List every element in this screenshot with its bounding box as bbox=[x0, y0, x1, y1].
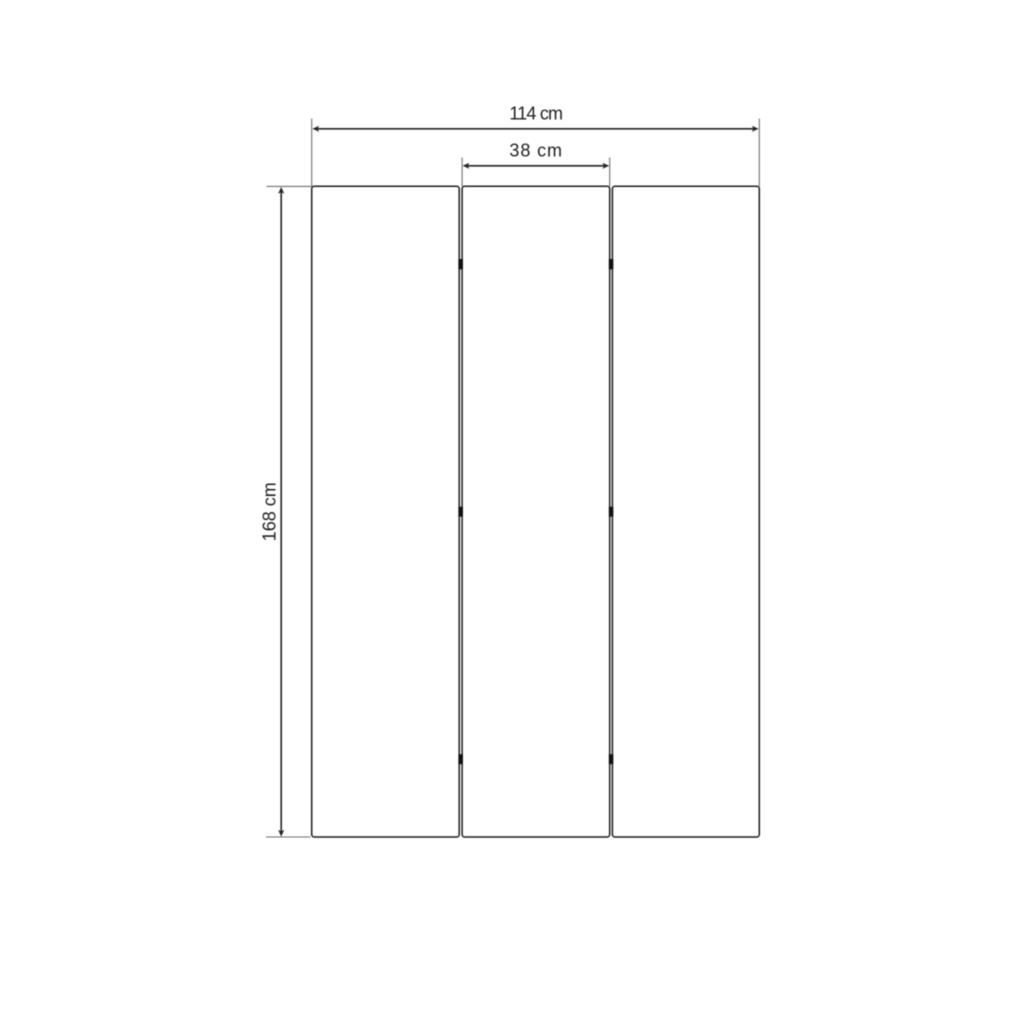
svg-text:168 cm: 168 cm bbox=[260, 482, 280, 541]
svg-text:38 cm: 38 cm bbox=[509, 140, 563, 160]
svg-text:114 cm: 114 cm bbox=[509, 103, 562, 123]
